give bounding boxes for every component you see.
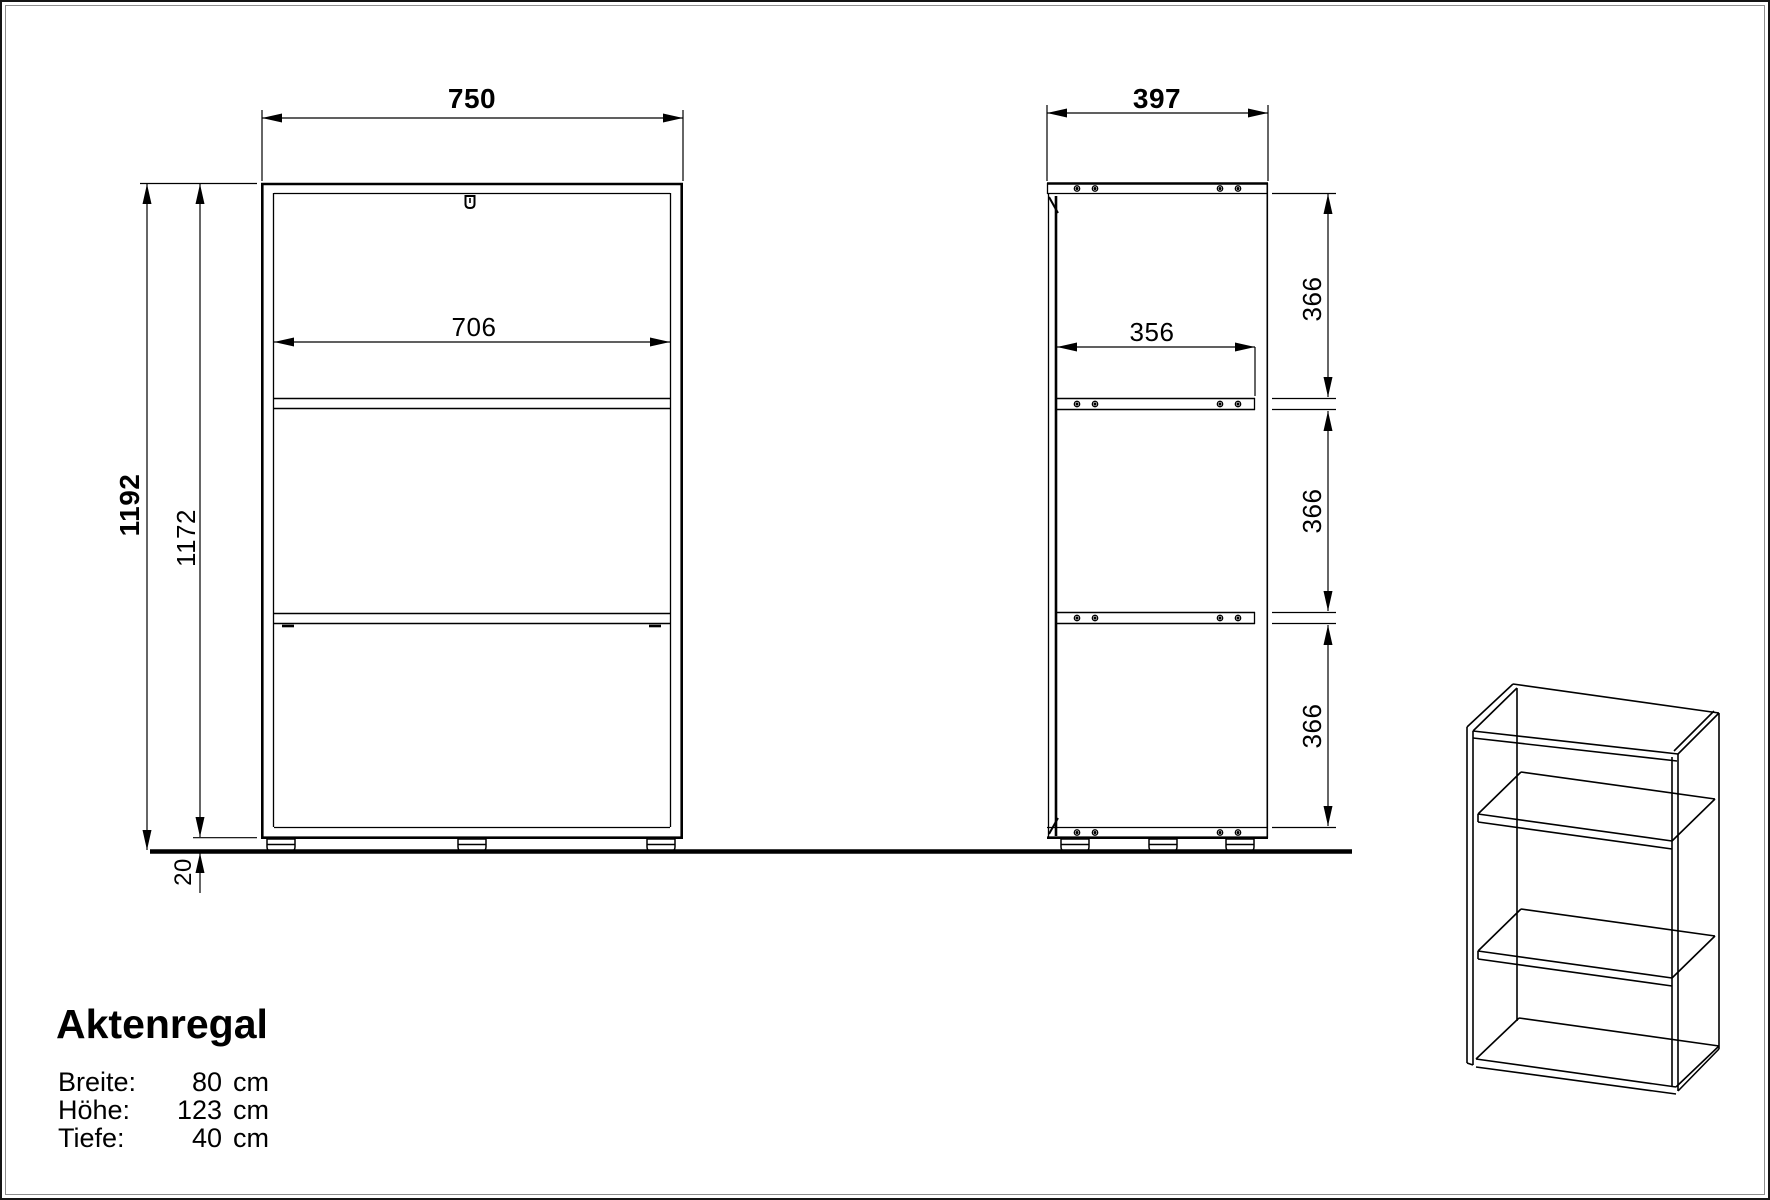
dim-label-compartment-1: 366 bbox=[1299, 277, 1325, 322]
front-feet bbox=[267, 839, 675, 851]
dim-label-front-width: 750 bbox=[448, 85, 496, 113]
spec-label: Tiefe: bbox=[58, 1124, 170, 1152]
spec-row-width: Breite: 80 cm bbox=[58, 1068, 269, 1096]
spec-label: Höhe: bbox=[58, 1096, 170, 1124]
dimension-lines bbox=[140, 105, 1336, 893]
dim-label-foot-height: 20 bbox=[172, 858, 196, 886]
spec-value: 123 bbox=[170, 1096, 222, 1124]
dim-label-side-depth: 397 bbox=[1133, 85, 1181, 113]
spec-value: 40 bbox=[170, 1124, 222, 1152]
perspective-view bbox=[1467, 684, 1719, 1094]
dim-label-compartment-3: 366 bbox=[1299, 704, 1325, 749]
dim-side-depth bbox=[1047, 105, 1268, 181]
dim-label-total-height: 1192 bbox=[116, 474, 144, 537]
spec-label: Breite: bbox=[58, 1068, 170, 1096]
dim-label-body-height: 1172 bbox=[173, 509, 199, 567]
spec-unit: cm bbox=[233, 1124, 269, 1152]
side-feet bbox=[1061, 839, 1254, 851]
spec-unit: cm bbox=[233, 1068, 269, 1096]
dim-label-shelf-depth: 356 bbox=[1130, 319, 1175, 345]
screw-holes bbox=[1074, 186, 1240, 835]
side-view bbox=[1047, 183, 1268, 851]
keyhole-icon bbox=[466, 196, 475, 208]
dim-label-front-inner-width: 706 bbox=[452, 314, 497, 340]
spec-value: 80 bbox=[170, 1068, 222, 1096]
technical-drawing-page: 750 706 1192 1172 20 397 356 366 366 366… bbox=[0, 0, 1770, 1200]
dim-shelf-depth bbox=[1057, 343, 1255, 397]
front-view bbox=[261, 183, 683, 851]
dim-label-compartment-2: 366 bbox=[1299, 489, 1325, 534]
spec-row-depth: Tiefe: 40 cm bbox=[58, 1124, 269, 1152]
spec-list: Breite: 80 cm Höhe: 123 cm Tiefe: 40 cm bbox=[58, 1068, 269, 1152]
spec-row-height: Höhe: 123 cm bbox=[58, 1096, 269, 1124]
spec-unit: cm bbox=[233, 1096, 269, 1124]
dim-front-width bbox=[262, 110, 683, 181]
product-title: Aktenregal bbox=[56, 1002, 268, 1047]
dim-body-height bbox=[193, 184, 257, 838]
